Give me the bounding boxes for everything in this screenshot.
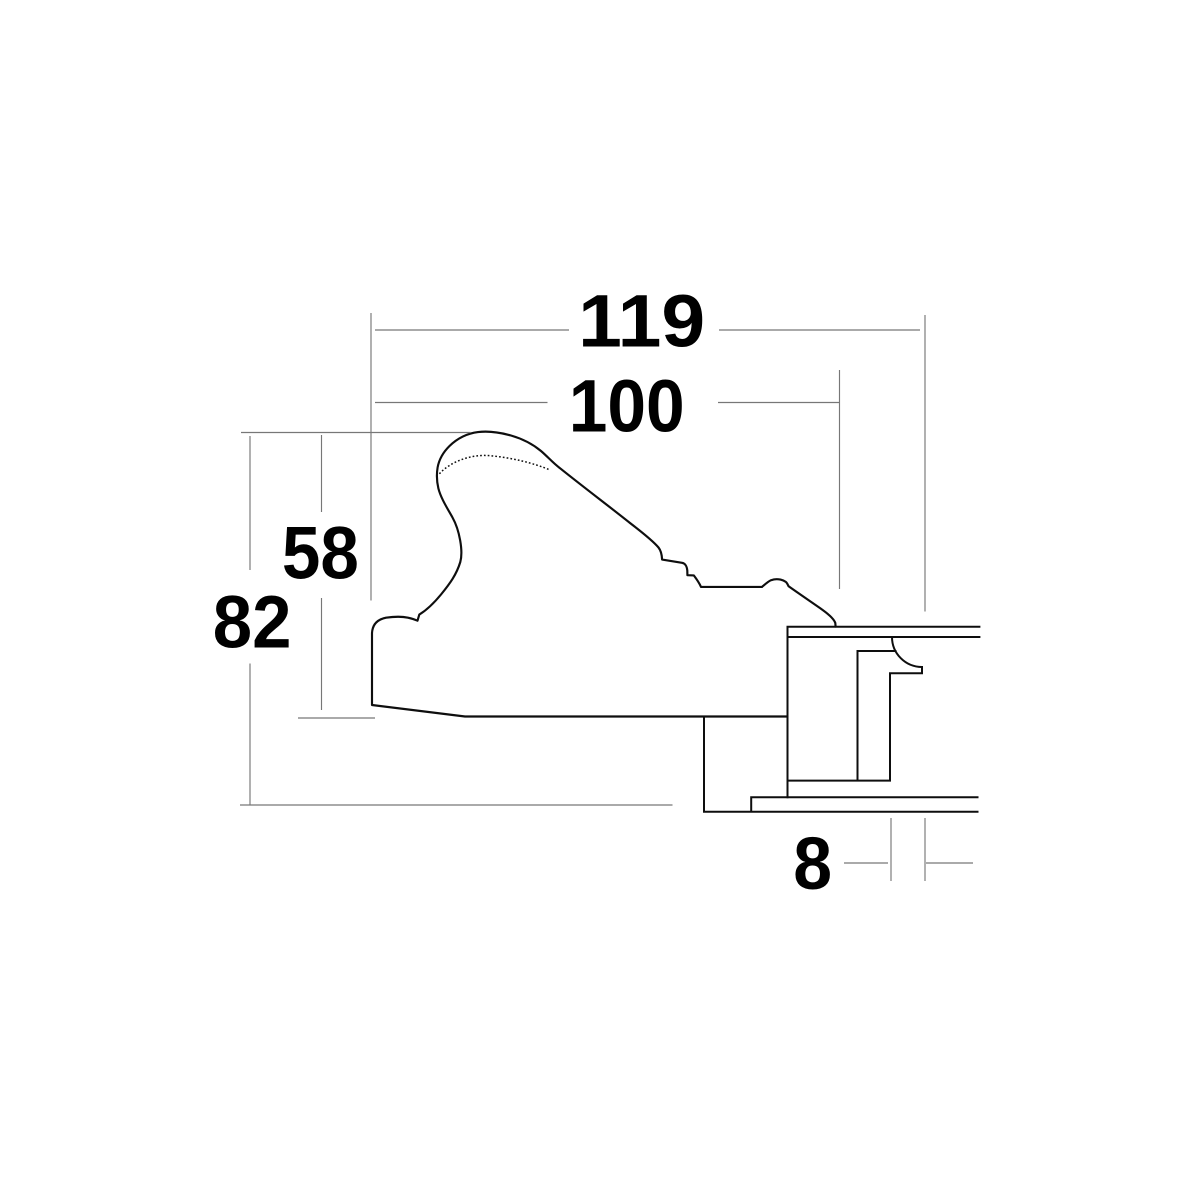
svg-text:58: 58	[282, 512, 359, 595]
svg-text:8: 8	[793, 822, 832, 905]
svg-text:100: 100	[569, 365, 685, 448]
svg-text:82: 82	[213, 581, 292, 664]
svg-text:119: 119	[578, 280, 705, 363]
